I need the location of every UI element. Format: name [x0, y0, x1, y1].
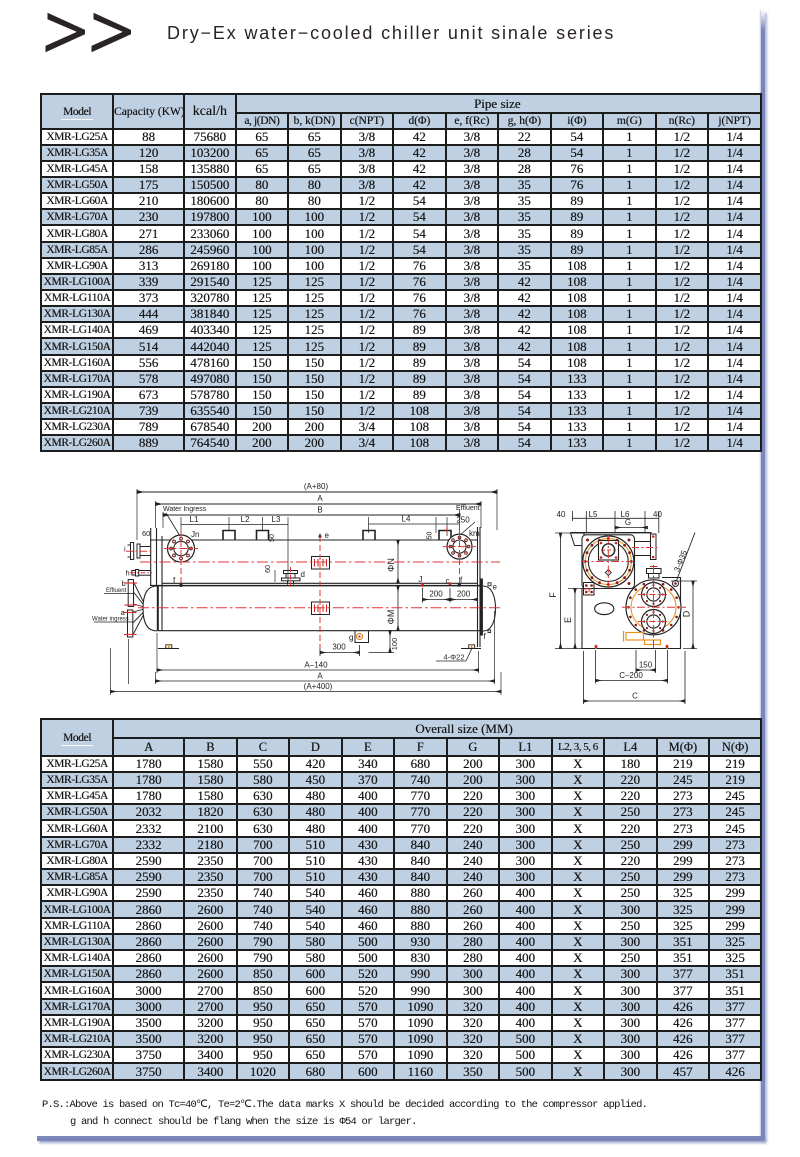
svg-text:Effluent: Effluent [106, 588, 127, 594]
svg-text:h: h [126, 569, 130, 578]
svg-text:Jn: Jn [191, 530, 199, 539]
svg-text:F: F [548, 592, 558, 598]
svg-text:A–140: A–140 [304, 661, 328, 670]
svg-text:D: D [682, 610, 692, 617]
svg-text:ΦN: ΦN [386, 558, 396, 572]
svg-text:4-Φ22: 4-Φ22 [444, 653, 465, 662]
svg-text:B: B [317, 506, 322, 515]
svg-text:Water ingress: Water ingress [92, 617, 129, 623]
svg-text:i: i [124, 545, 126, 554]
svg-text:L2: L2 [241, 515, 250, 524]
svg-text:(A+80): (A+80) [304, 482, 329, 491]
svg-text:200: 200 [457, 590, 471, 599]
svg-text:L1: L1 [190, 515, 199, 524]
svg-text:d: d [301, 570, 305, 579]
svg-text:G: G [625, 518, 631, 527]
svg-text:(A+400): (A+400) [304, 682, 333, 691]
svg-text:50: 50 [269, 534, 276, 542]
svg-text:50: 50 [427, 532, 434, 540]
svg-text:C–200: C–200 [619, 671, 643, 680]
svg-text:C: C [632, 692, 638, 701]
svg-text:L4: L4 [402, 515, 411, 524]
svg-text:40: 40 [653, 510, 662, 519]
svg-text:e: e [493, 583, 498, 592]
svg-text:300: 300 [332, 643, 346, 652]
svg-text:ΦM: ΦM [386, 610, 396, 625]
svg-text:A: A [317, 672, 323, 681]
svg-text:Effluent: Effluent [456, 505, 480, 512]
svg-text:J: J [419, 575, 423, 584]
svg-text:A: A [317, 494, 323, 503]
svg-text:km: km [469, 529, 480, 538]
svg-text:250: 250 [456, 516, 470, 525]
svg-text:g: g [349, 633, 353, 642]
svg-text:3-Φ35: 3-Φ35 [672, 548, 689, 573]
svg-text:40: 40 [557, 510, 566, 519]
svg-text:100: 100 [390, 638, 399, 651]
svg-text:150: 150 [639, 661, 653, 670]
svg-text:L5: L5 [589, 510, 598, 519]
svg-text:60: 60 [142, 529, 150, 538]
svg-text:e: e [325, 531, 330, 540]
svg-text:L3: L3 [272, 515, 281, 524]
svg-text:200: 200 [429, 590, 443, 599]
svg-text:Water Ingress: Water Ingress [163, 506, 207, 513]
svg-text:E: E [563, 617, 573, 623]
svg-text:60: 60 [265, 565, 272, 573]
svg-text:f: f [484, 632, 487, 641]
